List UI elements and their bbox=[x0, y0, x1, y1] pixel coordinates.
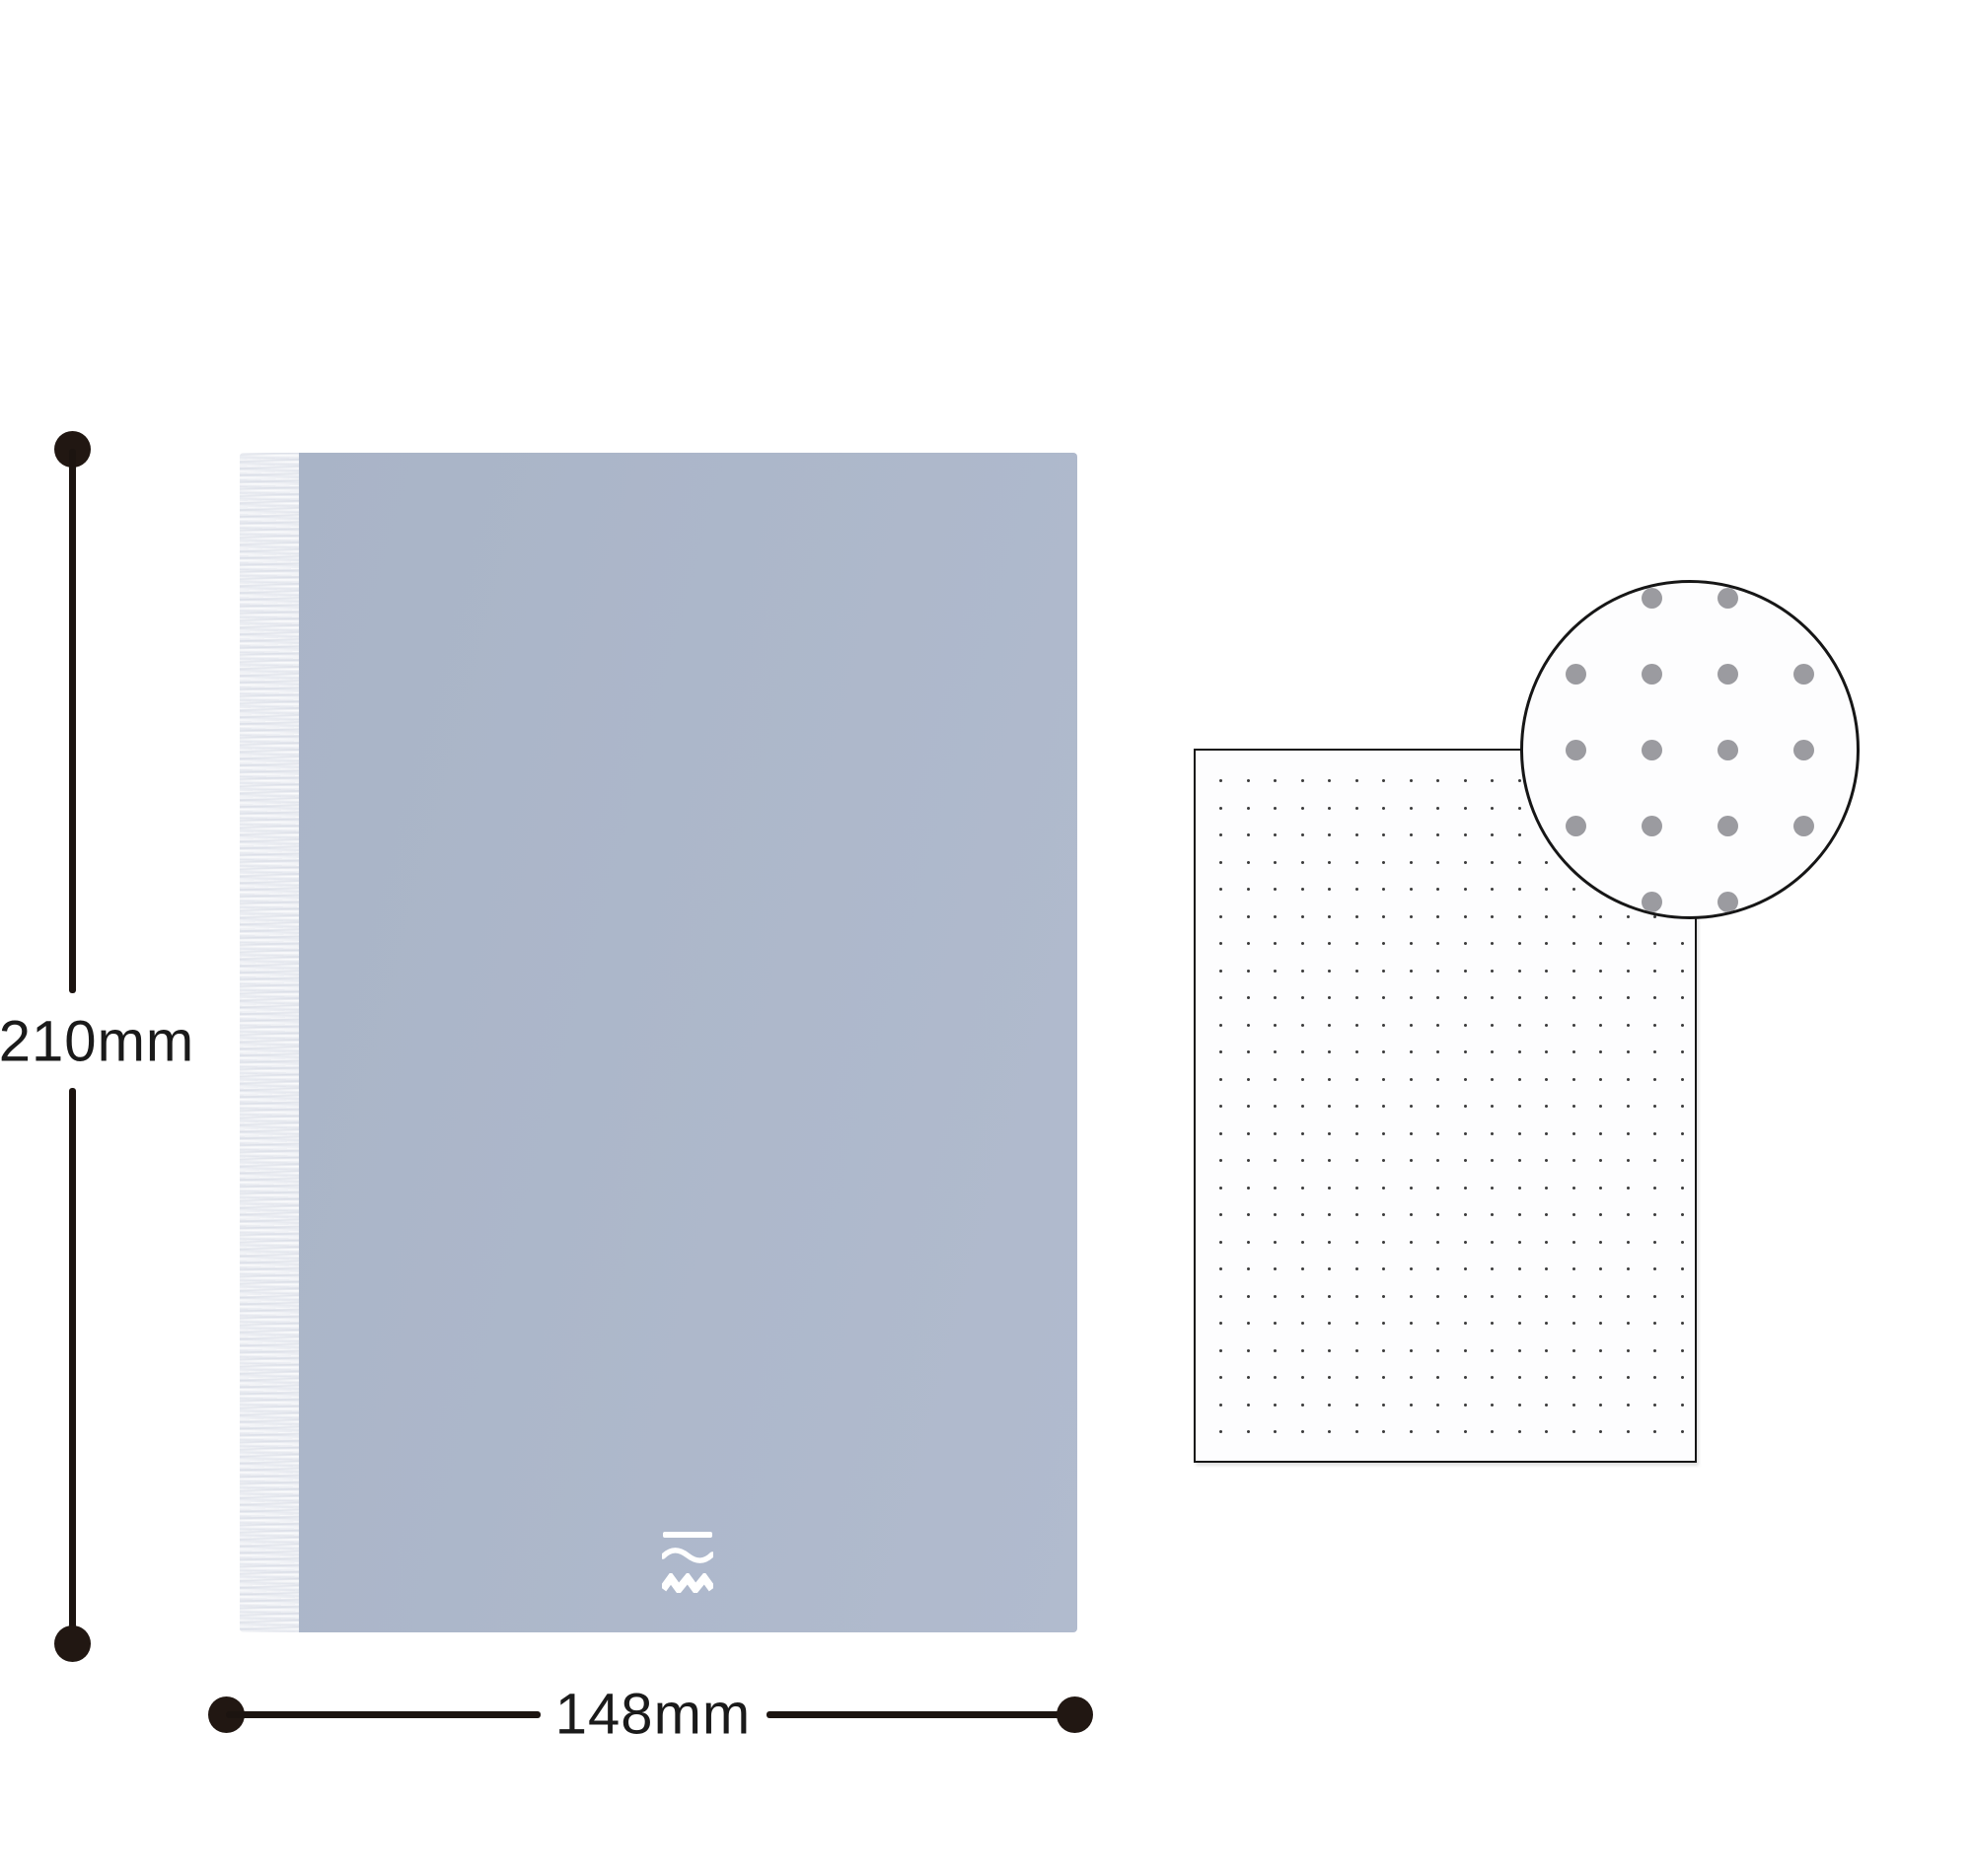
page-grid-dot bbox=[1653, 1050, 1656, 1053]
page-grid-dot bbox=[1572, 1267, 1575, 1270]
page-grid-dot bbox=[1247, 942, 1250, 945]
page-grid-dot bbox=[1219, 1050, 1222, 1053]
page-grid-dot bbox=[1301, 888, 1304, 891]
page-grid-dot bbox=[1545, 1187, 1548, 1190]
page-grid-dot bbox=[1491, 942, 1494, 945]
page-grid-dot bbox=[1247, 1105, 1250, 1108]
page-grid-dot bbox=[1301, 1105, 1304, 1108]
page-grid-dot bbox=[1301, 1078, 1304, 1081]
page-grid-dot bbox=[1653, 1159, 1656, 1162]
page-grid-dot bbox=[1274, 833, 1277, 836]
page-grid-dot bbox=[1545, 1349, 1548, 1352]
page-grid-dot bbox=[1681, 1241, 1684, 1244]
straight-line-icon bbox=[663, 1532, 712, 1538]
page-grid-dot bbox=[1274, 1024, 1277, 1027]
page-grid-dot bbox=[1328, 1430, 1331, 1433]
page-grid-dot bbox=[1464, 1187, 1467, 1190]
page-grid-dot bbox=[1219, 1159, 1222, 1162]
page-grid-dot bbox=[1599, 1241, 1602, 1244]
page-grid-dot bbox=[1301, 1267, 1304, 1270]
page-grid-dot bbox=[1627, 1187, 1630, 1190]
page-grid-dot bbox=[1653, 1295, 1656, 1298]
page-grid-dot bbox=[1627, 970, 1630, 973]
page-grid-dot bbox=[1545, 1078, 1548, 1081]
page-grid-dot bbox=[1382, 996, 1385, 999]
dimension-endpoint-dot bbox=[1057, 1696, 1093, 1733]
page-grid-dot bbox=[1653, 1132, 1656, 1135]
page-grid-dot bbox=[1627, 1105, 1630, 1108]
page-grid-dot bbox=[1681, 1322, 1684, 1325]
page-grid-dot bbox=[1518, 1159, 1521, 1162]
page-grid-dot bbox=[1219, 833, 1222, 836]
page-grid-dot bbox=[1572, 1241, 1575, 1244]
page-grid-dot bbox=[1599, 1349, 1602, 1352]
page-grid-dot bbox=[1599, 942, 1602, 945]
page-grid-dot bbox=[1219, 861, 1222, 864]
page-grid-dot bbox=[1410, 1105, 1413, 1108]
page-grid-dot bbox=[1518, 779, 1521, 782]
page-grid-dot bbox=[1247, 970, 1250, 973]
page-grid-dot bbox=[1328, 807, 1331, 810]
page-grid-dot bbox=[1436, 1213, 1439, 1216]
page-grid-dot bbox=[1518, 915, 1521, 918]
page-grid-dot bbox=[1436, 1187, 1439, 1190]
page-grid-dot bbox=[1247, 915, 1250, 918]
page-grid-dot bbox=[1301, 779, 1304, 782]
page-grid-dot bbox=[1681, 1267, 1684, 1270]
page-grid-dot bbox=[1410, 996, 1413, 999]
page-grid-dot bbox=[1599, 1105, 1602, 1108]
page-grid-dot bbox=[1491, 1241, 1494, 1244]
page-grid-dot bbox=[1219, 1213, 1222, 1216]
page-grid-dot bbox=[1247, 1132, 1250, 1135]
magnified-grid-dot bbox=[1566, 816, 1586, 836]
page-grid-dot bbox=[1219, 1187, 1222, 1190]
page-grid-dot bbox=[1545, 888, 1548, 891]
page-grid-dot bbox=[1219, 970, 1222, 973]
page-grid-dot bbox=[1436, 1078, 1439, 1081]
page-grid-dot bbox=[1301, 1159, 1304, 1162]
page-grid-dot bbox=[1653, 1213, 1656, 1216]
page-grid-dot bbox=[1247, 888, 1250, 891]
height-dimension-line bbox=[69, 449, 76, 993]
page-grid-dot bbox=[1436, 970, 1439, 973]
page-grid-dot bbox=[1464, 833, 1467, 836]
page-grid-dot bbox=[1410, 888, 1413, 891]
page-grid-dot bbox=[1599, 1024, 1602, 1027]
page-grid-dot bbox=[1382, 1187, 1385, 1190]
page-grid-dot bbox=[1301, 1430, 1304, 1433]
page-grid-dot bbox=[1572, 1024, 1575, 1027]
page-grid-dot bbox=[1545, 915, 1548, 918]
page-grid-dot bbox=[1545, 1105, 1548, 1108]
page-grid-dot bbox=[1518, 1024, 1521, 1027]
page-grid-dot bbox=[1518, 1078, 1521, 1081]
page-grid-dot bbox=[1328, 1349, 1331, 1352]
page-grid-dot bbox=[1518, 1295, 1521, 1298]
page-grid-dot bbox=[1681, 1404, 1684, 1407]
page-grid-dot bbox=[1410, 1159, 1413, 1162]
page-grid-dot bbox=[1410, 1187, 1413, 1190]
page-grid-dot bbox=[1355, 1241, 1358, 1244]
page-grid-dot bbox=[1382, 807, 1385, 810]
page-grid-dot bbox=[1219, 1105, 1222, 1108]
page-grid-dot bbox=[1491, 1050, 1494, 1053]
page-grid-dot bbox=[1328, 779, 1331, 782]
page-grid-dot bbox=[1301, 1376, 1304, 1379]
page-grid-dot bbox=[1599, 1430, 1602, 1433]
page-grid-dot bbox=[1410, 1050, 1413, 1053]
width-dimension-line bbox=[767, 1711, 1075, 1718]
page-grid-dot bbox=[1247, 1349, 1250, 1352]
page-grid-dot bbox=[1355, 1024, 1358, 1027]
page-grid-dot bbox=[1382, 1430, 1385, 1433]
page-grid-dot bbox=[1219, 1241, 1222, 1244]
page-grid-dot bbox=[1247, 1430, 1250, 1433]
notebook-cover-face bbox=[299, 453, 1077, 1632]
magnified-grid-dot bbox=[1717, 664, 1738, 685]
page-grid-dot bbox=[1247, 996, 1250, 999]
page-grid-dot bbox=[1219, 1322, 1222, 1325]
page-grid-dot bbox=[1382, 1213, 1385, 1216]
page-grid-dot bbox=[1464, 996, 1467, 999]
page-grid-dot bbox=[1572, 942, 1575, 945]
page-grid-dot bbox=[1545, 1404, 1548, 1407]
page-grid-dot bbox=[1301, 1404, 1304, 1407]
page-grid-dot bbox=[1355, 942, 1358, 945]
page-grid-dot bbox=[1410, 833, 1413, 836]
page-grid-dot bbox=[1436, 888, 1439, 891]
page-grid-dot bbox=[1328, 996, 1331, 999]
page-grid-dot bbox=[1627, 1295, 1630, 1298]
page-grid-dot bbox=[1355, 807, 1358, 810]
magnified-grid-dot bbox=[1642, 664, 1662, 685]
page-grid-dot bbox=[1219, 807, 1222, 810]
page-grid-dot bbox=[1247, 1187, 1250, 1190]
page-grid-dot bbox=[1599, 1187, 1602, 1190]
page-grid-dot bbox=[1681, 970, 1684, 973]
page-grid-dot bbox=[1436, 1105, 1439, 1108]
page-grid-dot bbox=[1627, 1050, 1630, 1053]
page-grid-dot bbox=[1328, 1322, 1331, 1325]
page-grid-dot bbox=[1627, 942, 1630, 945]
page-grid-dot bbox=[1572, 1295, 1575, 1298]
page-grid-dot bbox=[1301, 1322, 1304, 1325]
page-grid-dot bbox=[1436, 942, 1439, 945]
page-grid-dot bbox=[1301, 1241, 1304, 1244]
page-grid-dot bbox=[1247, 1376, 1250, 1379]
page-grid-dot bbox=[1328, 1241, 1331, 1244]
page-grid-dot bbox=[1274, 888, 1277, 891]
page-grid-dot bbox=[1518, 1187, 1521, 1190]
page-grid-dot bbox=[1653, 1376, 1656, 1379]
page-grid-dot bbox=[1627, 915, 1630, 918]
page-grid-dot bbox=[1355, 996, 1358, 999]
page-grid-dot bbox=[1599, 996, 1602, 999]
page-grid-dot bbox=[1599, 1159, 1602, 1162]
notebook-dimension-diagram: 210mm 148mm bbox=[0, 0, 1973, 1876]
page-grid-dot bbox=[1464, 1267, 1467, 1270]
page-grid-dot bbox=[1518, 1404, 1521, 1407]
page-grid-dot bbox=[1491, 1404, 1494, 1407]
page-grid-dot bbox=[1572, 1159, 1575, 1162]
page-grid-dot bbox=[1653, 1105, 1656, 1108]
page-grid-dot bbox=[1436, 1430, 1439, 1433]
page-grid-dot bbox=[1219, 1132, 1222, 1135]
page-grid-dot bbox=[1410, 1376, 1413, 1379]
page-grid-dot bbox=[1627, 1241, 1630, 1244]
page-grid-dot bbox=[1436, 915, 1439, 918]
page-grid-dot bbox=[1464, 1105, 1467, 1108]
page-grid-dot bbox=[1274, 1132, 1277, 1135]
page-grid-dot bbox=[1301, 1349, 1304, 1352]
page-grid-dot bbox=[1545, 970, 1548, 973]
page-grid-dot bbox=[1599, 970, 1602, 973]
page-grid-dot bbox=[1247, 1050, 1250, 1053]
page-grid-dot bbox=[1301, 861, 1304, 864]
page-grid-dot bbox=[1491, 888, 1494, 891]
page-grid-dot bbox=[1382, 1349, 1385, 1352]
page-grid-dot bbox=[1382, 1050, 1385, 1053]
page-grid-dot bbox=[1464, 1430, 1467, 1433]
page-grid-dot bbox=[1328, 1105, 1331, 1108]
page-grid-dot bbox=[1572, 1187, 1575, 1190]
page-grid-dot bbox=[1681, 1376, 1684, 1379]
page-grid-dot bbox=[1653, 1349, 1656, 1352]
page-grid-dot bbox=[1627, 996, 1630, 999]
page-grid-dot bbox=[1518, 1132, 1521, 1135]
page-grid-dot bbox=[1681, 1349, 1684, 1352]
page-grid-dot bbox=[1328, 1267, 1331, 1270]
page-grid-dot bbox=[1572, 1213, 1575, 1216]
zigzag-line-icon bbox=[662, 1573, 713, 1593]
page-grid-dot bbox=[1247, 779, 1250, 782]
page-grid-dot bbox=[1328, 1050, 1331, 1053]
page-grid-dot bbox=[1219, 1430, 1222, 1433]
page-grid-dot bbox=[1436, 1024, 1439, 1027]
page-grid-dot bbox=[1274, 1213, 1277, 1216]
page-grid-dot bbox=[1572, 1430, 1575, 1433]
page-grid-dot bbox=[1491, 1187, 1494, 1190]
page-grid-dot bbox=[1301, 1295, 1304, 1298]
page-grid-dot bbox=[1627, 1024, 1630, 1027]
page-grid-dot bbox=[1599, 1213, 1602, 1216]
page-grid-dot bbox=[1627, 1404, 1630, 1407]
page-grid-dot bbox=[1274, 1376, 1277, 1379]
page-grid-dot bbox=[1681, 942, 1684, 945]
page-grid-dot bbox=[1464, 1078, 1467, 1081]
page-grid-dot bbox=[1572, 1404, 1575, 1407]
page-grid-dot bbox=[1464, 942, 1467, 945]
page-grid-dot bbox=[1599, 1404, 1602, 1407]
page-grid-dot bbox=[1599, 1078, 1602, 1081]
page-grid-dot bbox=[1328, 942, 1331, 945]
magnified-grid-dot bbox=[1793, 740, 1814, 760]
page-grid-dot bbox=[1274, 1267, 1277, 1270]
page-grid-dot bbox=[1599, 1050, 1602, 1053]
page-grid-dot bbox=[1436, 779, 1439, 782]
page-grid-dot bbox=[1464, 915, 1467, 918]
page-grid-dot bbox=[1436, 1050, 1439, 1053]
page-grid-dot bbox=[1653, 1267, 1656, 1270]
page-grid-dot bbox=[1464, 1349, 1467, 1352]
page-grid-dot bbox=[1355, 1213, 1358, 1216]
width-dimension-label: 148mm bbox=[555, 1682, 751, 1748]
page-grid-dot bbox=[1328, 1295, 1331, 1298]
page-grid-dot bbox=[1328, 1024, 1331, 1027]
page-grid-dot bbox=[1410, 1241, 1413, 1244]
page-grid-dot bbox=[1491, 1376, 1494, 1379]
notebook-cover bbox=[240, 453, 1077, 1632]
page-grid-dot bbox=[1382, 888, 1385, 891]
page-grid-dot bbox=[1627, 1349, 1630, 1352]
page-grid-dot bbox=[1599, 915, 1602, 918]
page-grid-dot bbox=[1681, 1024, 1684, 1027]
magnified-grid-dot bbox=[1642, 740, 1662, 760]
height-dimension-label: 210mm bbox=[0, 1009, 194, 1075]
page-grid-dot bbox=[1247, 1267, 1250, 1270]
page-grid-dot bbox=[1572, 970, 1575, 973]
page-grid-dot bbox=[1382, 942, 1385, 945]
page-grid-dot bbox=[1464, 970, 1467, 973]
page-grid-dot bbox=[1545, 1132, 1548, 1135]
page-grid-dot bbox=[1410, 1430, 1413, 1433]
page-grid-dot bbox=[1410, 1078, 1413, 1081]
page-grid-dot bbox=[1572, 915, 1575, 918]
page-grid-dot bbox=[1518, 1349, 1521, 1352]
page-grid-dot bbox=[1491, 1024, 1494, 1027]
page-grid-dot bbox=[1464, 1213, 1467, 1216]
page-grid-dot bbox=[1274, 1349, 1277, 1352]
page-grid-dot bbox=[1410, 861, 1413, 864]
page-grid-dot bbox=[1653, 1430, 1656, 1433]
page-grid-dot bbox=[1681, 996, 1684, 999]
magnified-grid-dot bbox=[1717, 892, 1738, 912]
page-grid-dot bbox=[1382, 915, 1385, 918]
page-grid-dot bbox=[1328, 1404, 1331, 1407]
page-grid-dot bbox=[1274, 779, 1277, 782]
page-grid-dot bbox=[1328, 888, 1331, 891]
page-grid-dot bbox=[1355, 1267, 1358, 1270]
page-grid-dot bbox=[1382, 1159, 1385, 1162]
page-grid-dot bbox=[1274, 807, 1277, 810]
page-grid-dot bbox=[1436, 1349, 1439, 1352]
page-grid-dot bbox=[1219, 1376, 1222, 1379]
page-grid-dot bbox=[1410, 1024, 1413, 1027]
page-grid-dot bbox=[1572, 1132, 1575, 1135]
page-grid-dot bbox=[1328, 1376, 1331, 1379]
page-grid-dot bbox=[1464, 888, 1467, 891]
page-grid-dot bbox=[1355, 1376, 1358, 1379]
page-grid-dot bbox=[1355, 1105, 1358, 1108]
magnified-grid-dot bbox=[1793, 892, 1814, 912]
page-grid-dot bbox=[1410, 1132, 1413, 1135]
page-grid-dot bbox=[1436, 1267, 1439, 1270]
page-grid-dot bbox=[1410, 779, 1413, 782]
height-dimension-line bbox=[69, 1088, 76, 1644]
page-grid-dot bbox=[1382, 970, 1385, 973]
page-grid-dot bbox=[1491, 1213, 1494, 1216]
page-grid-dot bbox=[1464, 1050, 1467, 1053]
page-grid-dot bbox=[1436, 833, 1439, 836]
page-grid-dot bbox=[1355, 1078, 1358, 1081]
page-grid-dot bbox=[1518, 1376, 1521, 1379]
page-grid-dot bbox=[1301, 996, 1304, 999]
page-grid-dot bbox=[1653, 1404, 1656, 1407]
page-grid-dot bbox=[1627, 1213, 1630, 1216]
page-grid-dot bbox=[1274, 1187, 1277, 1190]
page-grid-dot bbox=[1219, 942, 1222, 945]
page-grid-dot bbox=[1355, 1349, 1358, 1352]
page-grid-dot bbox=[1545, 1050, 1548, 1053]
page-grid-dot bbox=[1572, 1376, 1575, 1379]
page-grid-dot bbox=[1274, 1430, 1277, 1433]
magnified-grid-dot bbox=[1793, 664, 1814, 685]
page-grid-dot bbox=[1491, 996, 1494, 999]
page-grid-dot bbox=[1355, 833, 1358, 836]
page-grid-dot bbox=[1219, 1295, 1222, 1298]
page-grid-dot bbox=[1436, 1132, 1439, 1135]
page-grid-dot bbox=[1410, 807, 1413, 810]
page-grid-dot bbox=[1491, 1349, 1494, 1352]
page-grid-dot bbox=[1328, 1213, 1331, 1216]
page-grid-dot bbox=[1301, 833, 1304, 836]
page-grid-dot bbox=[1681, 1430, 1684, 1433]
page-grid-dot bbox=[1382, 1132, 1385, 1135]
page-grid-dot bbox=[1464, 1376, 1467, 1379]
page-grid-dot bbox=[1382, 1322, 1385, 1325]
page-grid-dot bbox=[1627, 1078, 1630, 1081]
page-grid-dot bbox=[1328, 915, 1331, 918]
page-grid-dot bbox=[1247, 1241, 1250, 1244]
page-grid-dot bbox=[1491, 970, 1494, 973]
magnified-grid-dot bbox=[1793, 816, 1814, 836]
page-grid-dot bbox=[1518, 1050, 1521, 1053]
page-grid-dot bbox=[1627, 1322, 1630, 1325]
page-grid-dot bbox=[1518, 1105, 1521, 1108]
page-grid-dot bbox=[1653, 1322, 1656, 1325]
page-grid-dot bbox=[1653, 942, 1656, 945]
page-grid-dot bbox=[1355, 1050, 1358, 1053]
page-grid-dot bbox=[1599, 1376, 1602, 1379]
page-grid-dot bbox=[1545, 1213, 1548, 1216]
page-grid-dot bbox=[1219, 1267, 1222, 1270]
page-grid-dot bbox=[1653, 970, 1656, 973]
page-grid-dot bbox=[1382, 1078, 1385, 1081]
magnified-grid-dot bbox=[1642, 588, 1662, 609]
page-grid-dot bbox=[1328, 861, 1331, 864]
page-grid-dot bbox=[1355, 888, 1358, 891]
page-grid-dot bbox=[1355, 1159, 1358, 1162]
page-grid-dot bbox=[1274, 1322, 1277, 1325]
page-grid-dot bbox=[1627, 1159, 1630, 1162]
page-grid-dot bbox=[1464, 1322, 1467, 1325]
page-grid-dot bbox=[1355, 1295, 1358, 1298]
page-grid-dot bbox=[1219, 1024, 1222, 1027]
page-grid-dot bbox=[1681, 1078, 1684, 1081]
page-grid-dot bbox=[1436, 1159, 1439, 1162]
magnified-grid-dot bbox=[1717, 816, 1738, 836]
page-grid-dot bbox=[1274, 970, 1277, 973]
page-grid-dot bbox=[1681, 1132, 1684, 1135]
page-grid-dot bbox=[1247, 1078, 1250, 1081]
page-grid-dot bbox=[1518, 807, 1521, 810]
magnified-grid-dot bbox=[1717, 740, 1738, 760]
page-grid-dot bbox=[1518, 942, 1521, 945]
page-grid-dot bbox=[1572, 888, 1575, 891]
page-grid-dot bbox=[1274, 861, 1277, 864]
page-grid-dot bbox=[1518, 996, 1521, 999]
